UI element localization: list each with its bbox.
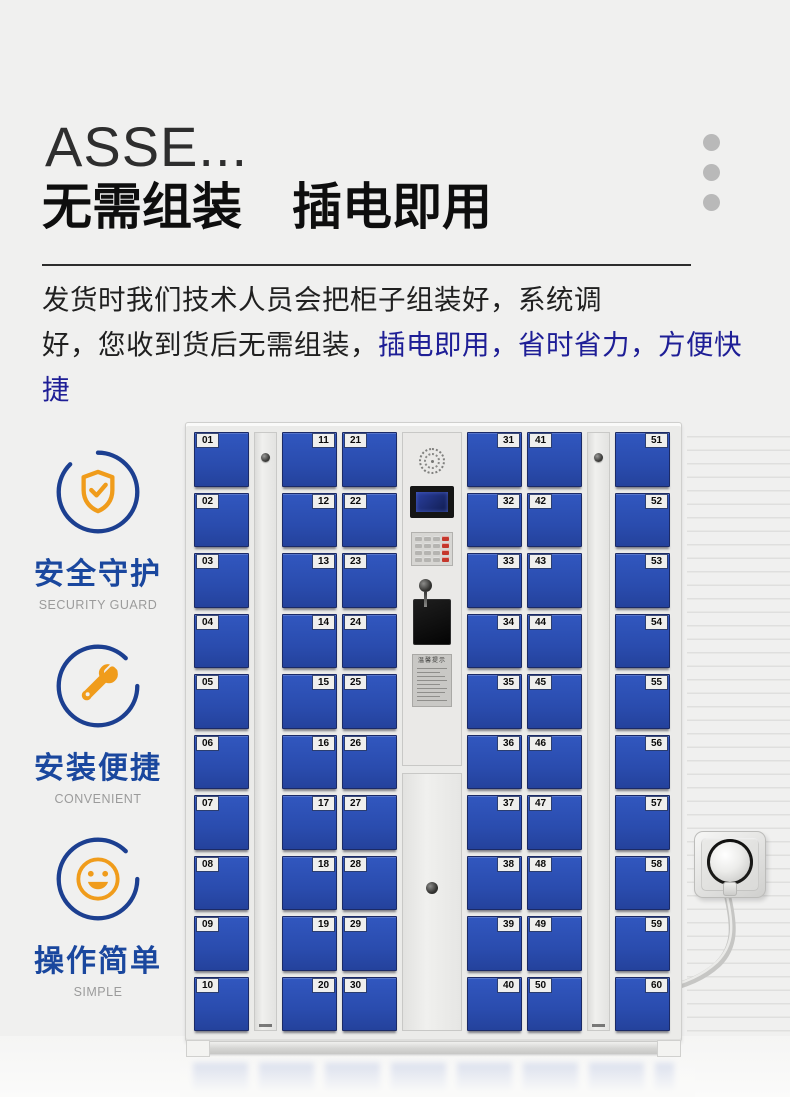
locker-door-21: 21 bbox=[342, 432, 397, 487]
locker-door-35: 35 bbox=[467, 674, 522, 729]
locker-door-29: 29 bbox=[342, 916, 397, 971]
locker-door-17: 17 bbox=[282, 795, 337, 850]
door-number-label: 37 bbox=[498, 797, 519, 810]
cabinet-foot-right bbox=[657, 1040, 681, 1057]
door-number-label: 38 bbox=[498, 858, 519, 871]
door-number-label: 55 bbox=[646, 676, 667, 689]
locker-door-33: 33 bbox=[467, 553, 522, 608]
smiley-icon bbox=[52, 833, 144, 925]
locker-door-53: 53 bbox=[615, 553, 670, 608]
locker-door-43: 43 bbox=[527, 553, 582, 608]
locker-door-46: 46 bbox=[527, 735, 582, 790]
door-number-label: 44 bbox=[530, 616, 551, 629]
desc-line2-plain: 好，您收到货后无需组装， bbox=[42, 329, 378, 360]
locker-door-32: 32 bbox=[467, 493, 522, 548]
door-number-label: 18 bbox=[313, 858, 334, 871]
door-number-label: 22 bbox=[345, 495, 366, 508]
cabinet-foot-left bbox=[186, 1040, 210, 1057]
door-number-label: 56 bbox=[646, 737, 667, 750]
door-number-label: 27 bbox=[345, 797, 366, 810]
door-number-label: 25 bbox=[345, 676, 366, 689]
locker-door-50: 50 bbox=[527, 977, 582, 1032]
locker-door-24: 24 bbox=[342, 614, 397, 669]
door-number-label: 17 bbox=[313, 797, 334, 810]
locker-door-15: 15 bbox=[282, 674, 337, 729]
product-detail-image: ASSE... 无需组装 插电即用 发货时我们技术人员会把柜子组装好，系统调 好… bbox=[0, 0, 790, 1097]
door-number-label: 31 bbox=[498, 434, 519, 447]
side-lock-panel-right bbox=[587, 432, 610, 1031]
page-title-zh: 无需组装 插电即用 bbox=[42, 178, 492, 236]
locker-door-57: 57 bbox=[615, 795, 670, 850]
locker-door-16: 16 bbox=[282, 735, 337, 790]
door-number-label: 47 bbox=[530, 797, 551, 810]
power-plug bbox=[710, 842, 750, 882]
locker-door-14: 14 bbox=[282, 614, 337, 669]
door-number-label: 08 bbox=[197, 858, 218, 871]
locker-door-37: 37 bbox=[467, 795, 522, 850]
door-number-label: 26 bbox=[345, 737, 366, 750]
door-number-label: 12 bbox=[313, 495, 334, 508]
door-number-label: 51 bbox=[646, 434, 667, 447]
page-title-en: ASSE... bbox=[45, 118, 248, 176]
cabinet-base bbox=[192, 1042, 675, 1054]
speaker-grille-icon bbox=[419, 448, 445, 474]
locker-door-31: 31 bbox=[467, 432, 522, 487]
feature-subtitle: SECURITY GUARD bbox=[14, 598, 182, 612]
door-number-label: 59 bbox=[646, 918, 667, 931]
door-number-label: 35 bbox=[498, 676, 519, 689]
door-number-label: 46 bbox=[530, 737, 551, 750]
notice-label: 温馨提示 bbox=[412, 654, 452, 707]
door-number-label: 33 bbox=[498, 555, 519, 568]
door-number-label: 29 bbox=[345, 918, 366, 931]
locker-door-28: 28 bbox=[342, 856, 397, 911]
door-column-1: 01020304050607080910 bbox=[194, 432, 249, 1031]
locker-door-06: 06 bbox=[194, 735, 249, 790]
door-number-label: 45 bbox=[530, 676, 551, 689]
locker-door-09: 09 bbox=[194, 916, 249, 971]
door-number-label: 20 bbox=[313, 979, 334, 992]
locker-door-22: 22 bbox=[342, 493, 397, 548]
locker-door-27: 27 bbox=[342, 795, 397, 850]
feature-convenient: 安装便捷 CONVENIENT bbox=[14, 640, 182, 806]
door-number-label: 32 bbox=[498, 495, 519, 508]
locker-door-08: 08 bbox=[194, 856, 249, 911]
locker-door-39: 39 bbox=[467, 916, 522, 971]
feature-security: 安全守护 SECURITY GUARD bbox=[14, 446, 182, 612]
locker-door-49: 49 bbox=[527, 916, 582, 971]
door-number-label: 43 bbox=[530, 555, 551, 568]
door-number-label: 41 bbox=[530, 434, 551, 447]
locker-door-60: 60 bbox=[615, 977, 670, 1032]
feature-title: 操作简单 bbox=[14, 936, 182, 980]
door-number-label: 15 bbox=[313, 676, 334, 689]
locker-door-03: 03 bbox=[194, 553, 249, 608]
locker-door-48: 48 bbox=[527, 856, 582, 911]
door-number-label: 03 bbox=[197, 555, 218, 568]
locker-door-10: 10 bbox=[194, 977, 249, 1032]
plug-neck bbox=[723, 882, 737, 896]
locker-door-55: 55 bbox=[615, 674, 670, 729]
locker-door-59: 59 bbox=[615, 916, 670, 971]
locker-door-44: 44 bbox=[527, 614, 582, 669]
control-lower-door bbox=[402, 773, 462, 1031]
wall-socket bbox=[694, 831, 766, 898]
locker-door-20: 20 bbox=[282, 977, 337, 1032]
door-number-label: 50 bbox=[530, 979, 551, 992]
locker-door-38: 38 bbox=[467, 856, 522, 911]
door-number-label: 07 bbox=[197, 797, 218, 810]
door-number-label: 49 bbox=[530, 918, 551, 931]
locker-door-18: 18 bbox=[282, 856, 337, 911]
control-lock-with-key bbox=[419, 579, 432, 592]
locker-door-47: 47 bbox=[527, 795, 582, 850]
keypad bbox=[411, 532, 453, 566]
door-number-label: 19 bbox=[313, 918, 334, 931]
shield-check-icon bbox=[52, 446, 144, 538]
door-number-label: 54 bbox=[646, 616, 667, 629]
locker-door-11: 11 bbox=[282, 432, 337, 487]
notice-title: 温馨提示 bbox=[416, 658, 448, 665]
door-number-label: 16 bbox=[313, 737, 334, 750]
locker-door-30: 30 bbox=[342, 977, 397, 1032]
locker-door-52: 52 bbox=[615, 493, 670, 548]
door-number-label: 09 bbox=[197, 918, 218, 931]
door-number-label: 24 bbox=[345, 616, 366, 629]
door-column-4: 31323334353637383940 bbox=[467, 432, 522, 1031]
door-number-label: 58 bbox=[646, 858, 667, 871]
door-number-label: 39 bbox=[498, 918, 519, 931]
locker-door-34: 34 bbox=[467, 614, 522, 669]
description-text: 发货时我们技术人员会把柜子组装好，系统调 好，您收到货后无需组装，插电即用，省时… bbox=[42, 277, 762, 412]
door-number-label: 36 bbox=[498, 737, 519, 750]
door-number-label: 60 bbox=[646, 979, 667, 992]
door-number-label: 14 bbox=[313, 616, 334, 629]
door-number-label: 04 bbox=[197, 616, 218, 629]
tools-icon bbox=[52, 640, 144, 732]
door-number-label: 52 bbox=[646, 495, 667, 508]
locker-door-41: 41 bbox=[527, 432, 582, 487]
door-number-label: 06 bbox=[197, 737, 218, 750]
door-number-label: 57 bbox=[646, 797, 667, 810]
locker-door-12: 12 bbox=[282, 493, 337, 548]
desc-line1: 发货时我们技术人员会把柜子组装好，系统调 bbox=[42, 284, 602, 315]
door-number-label: 23 bbox=[345, 555, 366, 568]
door-column-2: 11121314151617181920 bbox=[282, 432, 337, 1031]
control-column: 温馨提示 bbox=[402, 432, 462, 1031]
door-number-label: 30 bbox=[345, 979, 366, 992]
control-panel: 温馨提示 bbox=[402, 432, 462, 766]
locker-door-54: 54 bbox=[615, 614, 670, 669]
door-number-label: 01 bbox=[197, 434, 218, 447]
locker-door-36: 36 bbox=[467, 735, 522, 790]
locker-door-40: 40 bbox=[467, 977, 522, 1032]
locker-door-13: 13 bbox=[282, 553, 337, 608]
side-lock-panel-left bbox=[254, 432, 277, 1031]
locker-door-23: 23 bbox=[342, 553, 397, 608]
locker-door-45: 45 bbox=[527, 674, 582, 729]
door-number-label: 10 bbox=[197, 979, 218, 992]
title-divider bbox=[42, 264, 691, 266]
display-screen bbox=[410, 486, 454, 518]
door-column-3: 21222324252627282930 bbox=[342, 432, 397, 1031]
locker-door-25: 25 bbox=[342, 674, 397, 729]
door-column-5: 41424344454647484950 bbox=[527, 432, 582, 1031]
feature-title: 安全守护 bbox=[14, 549, 182, 593]
decor-dots bbox=[703, 134, 720, 224]
feature-subtitle: SIMPLE bbox=[14, 985, 182, 999]
door-number-label: 21 bbox=[345, 434, 366, 447]
locker-door-19: 19 bbox=[282, 916, 337, 971]
door-number-label: 53 bbox=[646, 555, 667, 568]
locker-door-04: 04 bbox=[194, 614, 249, 669]
door-number-label: 40 bbox=[498, 979, 519, 992]
door-number-label: 34 bbox=[498, 616, 519, 629]
door-number-label: 05 bbox=[197, 676, 218, 689]
door-number-label: 48 bbox=[530, 858, 551, 871]
door-number-label: 28 bbox=[345, 858, 366, 871]
door-number-label: 02 bbox=[197, 495, 218, 508]
locker-door-01: 01 bbox=[194, 432, 249, 487]
feature-title: 安装便捷 bbox=[14, 743, 182, 787]
locker-door-56: 56 bbox=[615, 735, 670, 790]
door-column-6: 51525354555657585960 bbox=[615, 432, 670, 1031]
locker-door-07: 07 bbox=[194, 795, 249, 850]
door-number-label: 42 bbox=[530, 495, 551, 508]
dark-slot-panel bbox=[413, 599, 451, 645]
locker-door-02: 02 bbox=[194, 493, 249, 548]
locker-door-26: 26 bbox=[342, 735, 397, 790]
locker-door-58: 58 bbox=[615, 856, 670, 911]
locker-cabinet: 01020304050607080910 1112131415161718192… bbox=[185, 422, 682, 1042]
lcd-panel bbox=[416, 492, 448, 512]
door-number-label: 13 bbox=[313, 555, 334, 568]
locker-door-05: 05 bbox=[194, 674, 249, 729]
floor-reflection-fade bbox=[180, 1060, 695, 1097]
locker-door-51: 51 bbox=[615, 432, 670, 487]
locker-door-42: 42 bbox=[527, 493, 582, 548]
door-number-label: 11 bbox=[313, 434, 334, 447]
feature-subtitle: CONVENIENT bbox=[14, 792, 182, 806]
feature-simple: 操作简单 SIMPLE bbox=[14, 833, 182, 999]
